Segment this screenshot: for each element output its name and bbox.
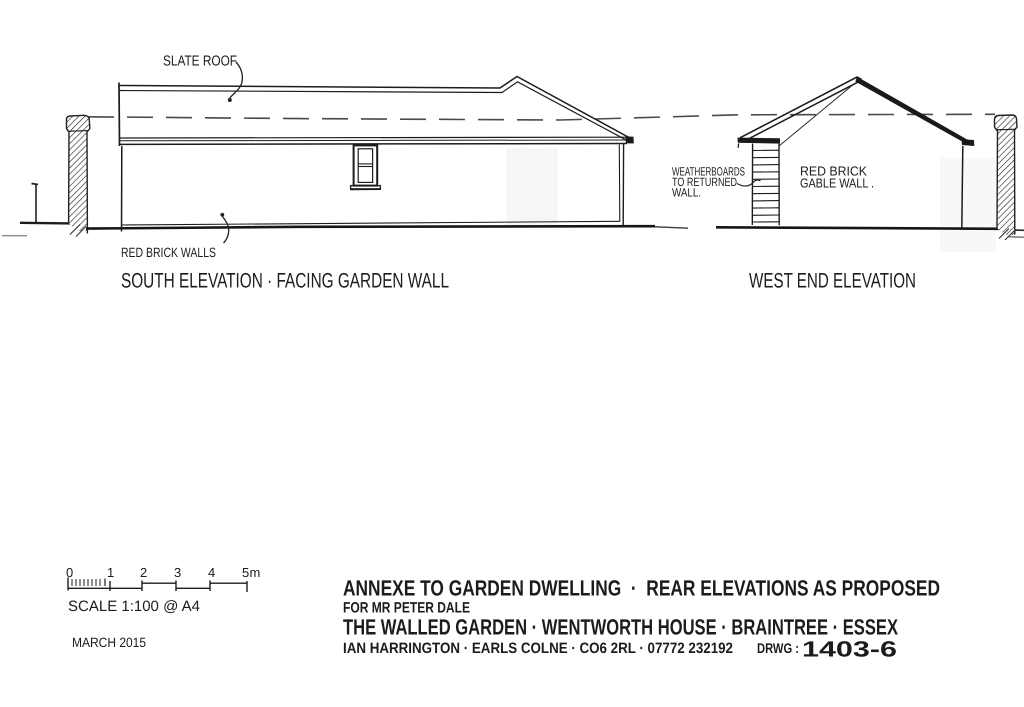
svg-text:5m: 5m xyxy=(242,565,261,580)
svg-text:MARCH 2015: MARCH 2015 xyxy=(72,635,146,650)
svg-text:RED BRICK WALLS: RED BRICK WALLS xyxy=(121,245,216,260)
svg-text:WEST END ELEVATION: WEST END ELEVATION xyxy=(749,269,916,292)
svg-text:WALL.: WALL. xyxy=(672,186,701,200)
svg-text:GABLE WALL .: GABLE WALL . xyxy=(800,176,874,191)
svg-text:SLATE ROOF: SLATE ROOF xyxy=(163,54,237,70)
svg-text:1403-6: 1403-6 xyxy=(802,637,897,662)
svg-text:2: 2 xyxy=(140,565,148,580)
svg-text:0: 0 xyxy=(66,565,74,580)
svg-text:SOUTH ELEVATION · FACING GARDE: SOUTH ELEVATION · FACING GARDEN WALL xyxy=(121,269,449,292)
svg-text:SCALE 1:100 @ A4: SCALE 1:100 @ A4 xyxy=(68,598,200,615)
svg-text:4: 4 xyxy=(208,565,216,580)
svg-text:IAN HARRINGTON · EARLS COLNE: IAN HARRINGTON · EARLS COLNE · CO6 2RL ·… xyxy=(343,640,733,657)
svg-text:1: 1 xyxy=(107,565,115,580)
svg-text:3: 3 xyxy=(174,565,182,580)
svg-text:DRWG :: DRWG : xyxy=(757,640,799,656)
svg-text:ANNEXE TO GARDEN DWELLING ·: ANNEXE TO GARDEN DWELLING · REAR ELEVATI… xyxy=(343,576,940,601)
